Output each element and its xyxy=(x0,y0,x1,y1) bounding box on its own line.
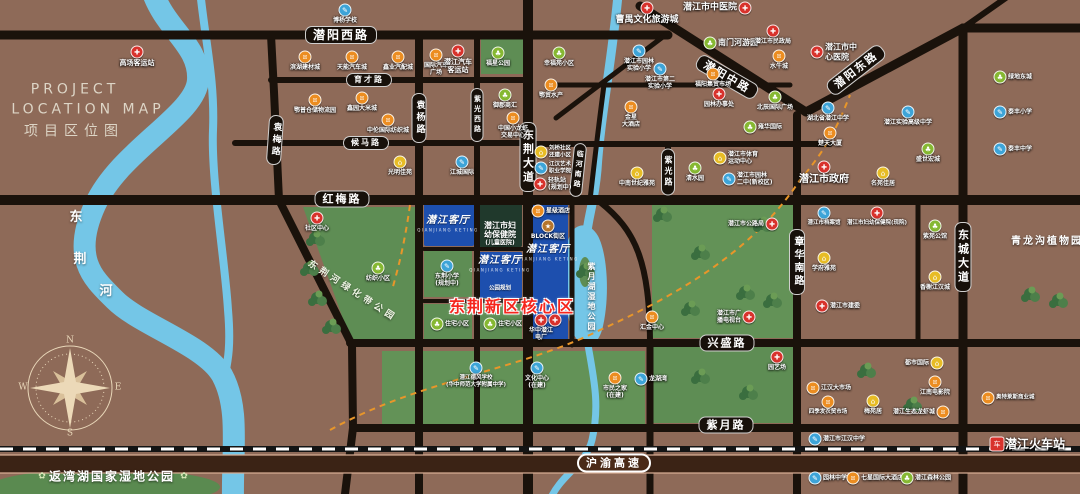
poi-label: 潜江市妇幼保健院(现院) xyxy=(847,220,907,227)
poi-label: 都市国际 xyxy=(905,359,929,366)
poi-label: 幸福苑小区 xyxy=(544,60,574,67)
poi-label: 鑫业汽配城 xyxy=(383,64,413,71)
market-icon: ¤ xyxy=(807,382,820,395)
poi-label: 星级酒店 xyxy=(546,207,570,214)
poi-label: 绿地东城 xyxy=(1008,73,1032,80)
market-icon: ¤ xyxy=(356,92,369,105)
market-icon: ¤ xyxy=(346,51,359,64)
school-icon: ✎ xyxy=(633,45,646,58)
poi-label: 住宅小区 xyxy=(498,320,522,327)
park-icon: ♣ xyxy=(372,262,385,275)
red-cross-icon: ✚ xyxy=(743,311,756,324)
compass-letter-n: N xyxy=(66,335,74,346)
park-icon: ♣ xyxy=(929,220,942,233)
school-icon: ✎ xyxy=(723,173,736,186)
road-label: 红梅路 xyxy=(315,191,370,208)
park-icon: ♣ xyxy=(994,71,1007,84)
project-script: 潜江客厅 xyxy=(426,215,470,228)
poi-label: 潜江生态龙虾城 xyxy=(893,408,935,415)
poi-label: 鄂贸水产 xyxy=(539,92,563,99)
residence-icon: ⌂ xyxy=(931,357,944,370)
school-icon: ✎ xyxy=(809,433,822,446)
market-icon: ¤ xyxy=(937,406,950,419)
poi-label: 市民之家(在建) xyxy=(603,385,627,399)
residence-icon: ⌂ xyxy=(867,395,880,408)
poi-label: 四季发农贸市场 xyxy=(809,409,848,416)
poi-label: 潜江火车站 xyxy=(1005,437,1065,451)
school-icon: ✎ xyxy=(822,102,835,115)
poi-label: 水牛城 xyxy=(770,63,788,70)
road-label: 候马路 xyxy=(343,136,389,150)
project-caption: QIANJIANG KETING xyxy=(517,257,578,262)
market-icon: ¤ xyxy=(507,112,520,125)
poi-label: 社区中心 xyxy=(305,225,329,232)
market-icon: ¤ xyxy=(625,101,638,114)
market-icon: ¤ xyxy=(822,396,835,409)
title-en-1: PROJECT xyxy=(31,81,120,99)
red-cross-icon: ✚ xyxy=(811,46,824,59)
compass-letter-e: E xyxy=(115,382,122,393)
red-cross-icon: ✚ xyxy=(739,2,752,15)
poi-label: 福星公园 xyxy=(486,60,510,67)
train-station-icon: 车 xyxy=(990,437,1005,452)
red-cross-icon: ✚ xyxy=(535,314,548,327)
park-icon: ♣ xyxy=(744,121,757,134)
road-label: 沪渝高速 xyxy=(577,454,651,473)
market-icon: ¤ xyxy=(532,205,545,218)
market-icon: ¤ xyxy=(773,50,786,63)
poi-label: 潜江市公路局 xyxy=(728,220,764,227)
poi-label: 潜江市中心医院 xyxy=(825,42,857,61)
title-en-2: LOCATION MAP xyxy=(11,101,164,119)
park-icon: ♣ xyxy=(901,472,914,485)
red-cross-icon: ✚ xyxy=(641,2,654,15)
school-icon: ✎ xyxy=(902,106,915,119)
residence-icon: ⌂ xyxy=(877,167,890,180)
red-cross-icon: ✚ xyxy=(534,178,547,191)
market-icon: ¤ xyxy=(382,114,395,127)
red-cross-icon: ✚ xyxy=(818,161,831,174)
poi-label: 潜江市档案馆 xyxy=(807,220,840,227)
poi-label: 东荆小学(规划中) xyxy=(435,273,459,287)
park-plan-label: 公园规划 xyxy=(489,286,511,293)
market-icon: ¤ xyxy=(392,51,405,64)
school-icon: ✎ xyxy=(535,162,548,175)
school-icon: ✎ xyxy=(994,143,1007,156)
poi-label: 盛世宏城 xyxy=(916,156,940,163)
poi-label: 高场客运站 xyxy=(120,59,155,67)
poi-label: 学府雅苑 xyxy=(812,265,836,272)
poi-label: 梅苑居 xyxy=(864,408,882,415)
school-icon: ✎ xyxy=(339,4,352,17)
poi-label: 文化中心(在建) xyxy=(525,375,549,389)
market-icon: ¤ xyxy=(707,68,720,81)
river-name: 荆 xyxy=(73,252,86,268)
school-icon: ✎ xyxy=(470,362,483,375)
park-icon: ♣ xyxy=(499,89,512,102)
flower-icon: ✿ xyxy=(38,471,46,482)
park-icon: ♣ xyxy=(689,162,702,175)
school-icon: ✎ xyxy=(818,207,831,220)
poi-label: 园艺场 xyxy=(768,364,786,371)
poi-label: 名苑佳居 xyxy=(871,180,895,187)
poi-label: 金星大酒店 xyxy=(622,114,640,128)
poi-label: 香榭江汉城 xyxy=(920,284,950,291)
market-icon: ¤ xyxy=(929,376,942,389)
wetland-park-label: 返湾湖国家湿地公园 xyxy=(49,470,175,485)
poi-label: 潜江市广播电视台 xyxy=(717,310,741,324)
project-caption: QIANJIANG KETING xyxy=(469,268,530,273)
market-icon: ¤ xyxy=(430,49,443,62)
poi-label: 潜江市园林二中(新校区) xyxy=(737,172,773,186)
road-label: 兴盛路 xyxy=(700,335,755,352)
residence-icon: ⌂ xyxy=(394,156,407,169)
poi-label: 七星国际大酒店 xyxy=(861,474,903,481)
red-cross-icon: ✚ xyxy=(549,314,562,327)
park-icon: ♣ xyxy=(553,47,566,60)
school-icon: ✎ xyxy=(994,106,1007,119)
school-icon: ✎ xyxy=(531,362,544,375)
poi-label: 龙湖湾 xyxy=(649,375,667,382)
red-cross-icon: ✚ xyxy=(771,351,784,364)
poi-label: 潜江森林公园 xyxy=(915,474,951,481)
compass-letter-s: S xyxy=(67,428,73,439)
park-icon: ♣ xyxy=(704,37,717,50)
road-label: 紫光路 xyxy=(661,149,675,196)
poi-label: 光明佳苑 xyxy=(388,169,412,176)
poi-label: 中伦国际纺织城 xyxy=(367,127,409,134)
compass-rose xyxy=(28,346,112,430)
poi-label: 刘桥社区还建小区 xyxy=(549,145,571,158)
road-label: 紫月路 xyxy=(699,417,754,434)
market-icon: ¤ xyxy=(299,51,312,64)
poi-label: 清水园 xyxy=(686,175,704,182)
poi-label: 湖北省潜江中学 xyxy=(807,115,849,122)
block-icon: ★ xyxy=(542,220,555,233)
red-cross-icon: ✚ xyxy=(713,88,726,101)
poi-label: 中国小龙虾交易中心 xyxy=(498,125,528,139)
poi-label: 奥特莱斯商业城 xyxy=(996,395,1035,402)
poi-label: 潜江市政府 xyxy=(799,174,849,186)
road-label: 潜阳西路 xyxy=(305,26,377,44)
poi-label: 潜江市第二实验小学 xyxy=(645,76,675,90)
plant-garden-label: 青龙沟植物园 xyxy=(1011,236,1080,249)
poi-label: 潜江市中医院 xyxy=(683,3,737,14)
road-label: 紫光西路 xyxy=(471,88,484,142)
poi-label: 鑫园大米城 xyxy=(347,105,377,112)
poi-label: 潜江市体育运动中心 xyxy=(728,151,758,165)
poi-label: 天能汽车城 xyxy=(337,64,367,71)
red-cross-icon: ✚ xyxy=(452,45,465,58)
poi-label: 汇金中心 xyxy=(640,324,664,331)
project-script: 潜江客厅 xyxy=(478,255,522,268)
red-cross-icon: ✚ xyxy=(766,218,779,231)
market-icon: ¤ xyxy=(824,127,837,140)
red-cross-icon: ✚ xyxy=(131,46,144,59)
red-cross-icon: ✚ xyxy=(311,212,324,225)
poi-label: 江城国际 xyxy=(450,169,474,176)
poi-label: 中南世纪雅苑 xyxy=(619,180,655,187)
poi-label: 潜江市建委 xyxy=(830,302,860,309)
poi-label: 曹禺文化旅游城 xyxy=(615,15,678,26)
poi-label: 南门河游园 xyxy=(718,38,758,48)
poi-label: 潜江市民政局 xyxy=(755,38,791,45)
school-icon: ✎ xyxy=(654,63,667,76)
poi-label: 鄂普仓储物流园 xyxy=(294,107,336,114)
project-caption: QIANJIANG KETING xyxy=(417,228,478,233)
market-icon: ¤ xyxy=(545,79,558,92)
flower-icon: ✿ xyxy=(180,471,188,482)
road-label: 东城大道 xyxy=(955,222,972,292)
poi-label: 潜江市园林实验小学 xyxy=(624,58,654,72)
poi-label: 园林办事处 xyxy=(704,101,734,108)
poi-label: 博杨学校 xyxy=(333,17,357,24)
poi-label: 华中潜江电厂 xyxy=(529,327,553,341)
park-icon: ♣ xyxy=(769,91,782,104)
residence-icon: ⌂ xyxy=(929,271,942,284)
poi-label: 福阳集贸市场 xyxy=(695,81,731,88)
hospital-block-label: (儿童医院) xyxy=(485,239,515,247)
residence-icon: ⌂ xyxy=(535,146,548,159)
park-icon: ♣ xyxy=(492,47,505,60)
residence-icon: ⌂ xyxy=(818,252,831,265)
title-cn: 项目区位图 xyxy=(24,123,124,141)
poi-label: 泰丰中学 xyxy=(1008,145,1032,152)
residence-icon: ⌂ xyxy=(714,152,727,165)
poi-label: 江汉艺术职业学院 xyxy=(549,161,571,174)
residence-icon: ⌂ xyxy=(631,167,644,180)
poi-label: 潜江市江汉中学 xyxy=(823,435,865,442)
market-icon: ¤ xyxy=(646,311,659,324)
poi-label: 住宅小区 xyxy=(445,320,469,327)
compass-letter-w: W xyxy=(18,382,27,393)
project-script: 潜江客厅 xyxy=(526,244,570,257)
poi-label: 紫苑公馆 xyxy=(923,233,947,240)
school-icon: ✎ xyxy=(809,472,822,485)
poi-label: 江南电影院 xyxy=(920,389,950,396)
market-icon: ¤ xyxy=(609,372,622,385)
park-icon: ♣ xyxy=(431,318,444,331)
park-icon: ♣ xyxy=(922,143,935,156)
poi-label: 楚天大厦 xyxy=(818,140,842,147)
poi-label: 江汉大市场 xyxy=(821,384,851,391)
poi-label: 北辰国际广场 xyxy=(757,104,793,111)
poi-label: 纺织小区 xyxy=(366,275,390,282)
river-name: 河 xyxy=(99,284,112,300)
poi-label: 轻轨站(规划中) xyxy=(548,177,572,191)
market-icon: ¤ xyxy=(309,94,322,107)
school-icon: ✎ xyxy=(635,373,648,386)
river-name: 东 xyxy=(69,210,82,226)
road-label: 章华南路 xyxy=(789,229,805,295)
poi-label: 潜江实验高级中学 xyxy=(884,119,932,126)
red-cross-icon: ✚ xyxy=(767,25,780,38)
park-icon: ♣ xyxy=(484,318,497,331)
poi-label: 潜江德风学校(华中师范大学附属中学) xyxy=(446,375,506,388)
school-icon: ✎ xyxy=(441,260,454,273)
market-icon: ¤ xyxy=(982,392,995,405)
poi-label: 滨湖建材城 xyxy=(290,64,320,71)
lake-park-label: 紫月湖湿地公园 xyxy=(586,262,596,332)
poi-label: BLOCK街区 xyxy=(531,233,565,240)
poi-label: 潜江汽车客运站 xyxy=(444,58,472,75)
poi-label: 雍华国际 xyxy=(758,123,782,130)
poi-label: 泰丰小学 xyxy=(1008,108,1032,115)
red-cross-icon: ✚ xyxy=(816,300,829,313)
road-label: 袁杨路 xyxy=(412,93,427,143)
road-label: 育才路 xyxy=(346,73,392,87)
market-icon: ¤ xyxy=(847,472,860,485)
poi-label: 园林中学 xyxy=(823,474,847,481)
project-location-map: 潜阳西路育才路候马路红梅路兴盛路紫月路潜阳中路潜阳东路沪渝高速袁梅路袁杨路紫光西… xyxy=(0,0,1080,494)
poi-label: 御郡商汇 xyxy=(493,102,517,109)
school-icon: ✎ xyxy=(456,156,469,169)
red-cross-icon: ✚ xyxy=(871,207,884,220)
